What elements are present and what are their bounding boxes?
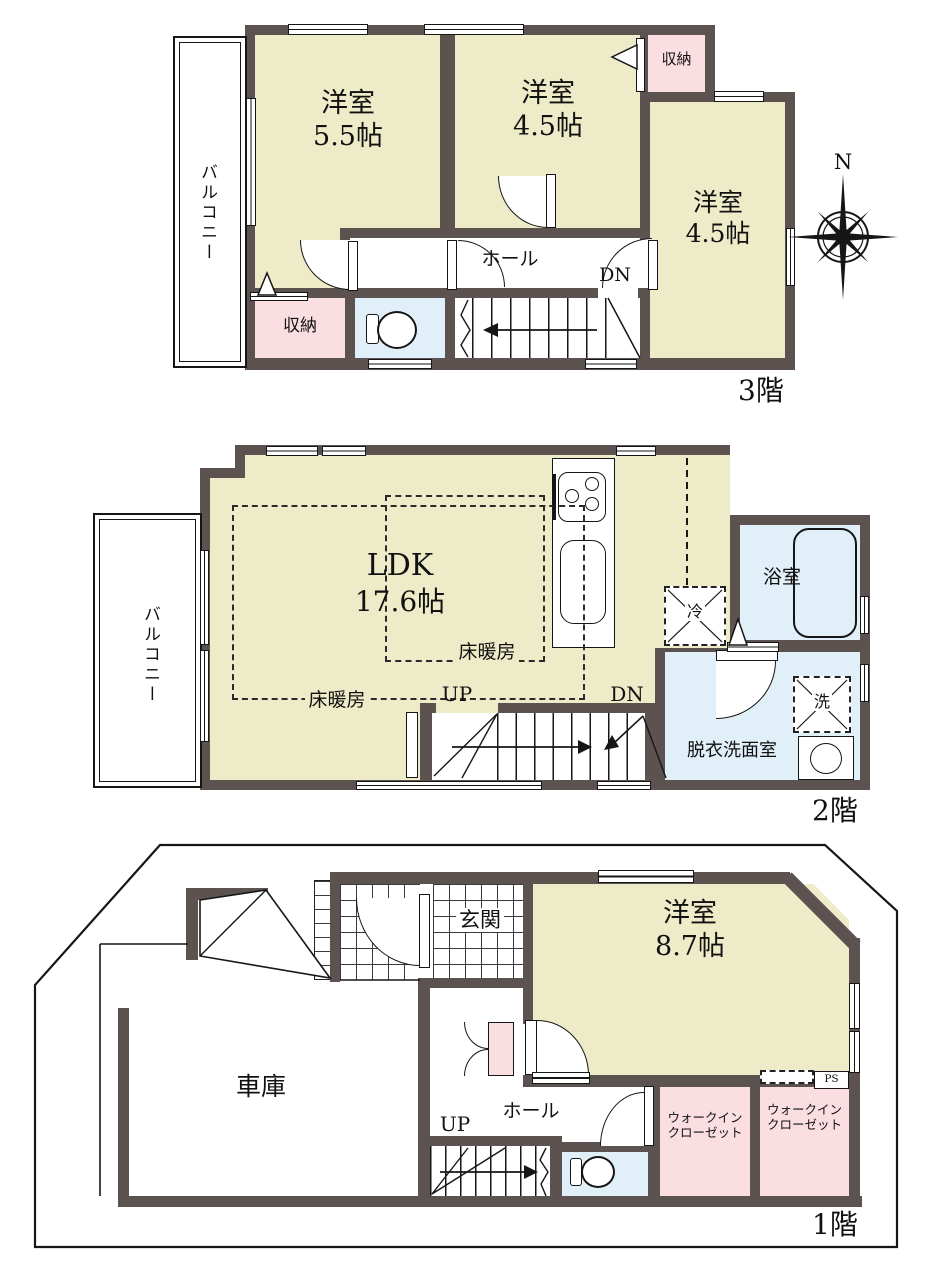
f1-wic-left-label: ウォークイン クローゼット <box>660 1110 750 1141</box>
f1-wic-left <box>660 1085 750 1196</box>
f3-room4_5mid-label: 洋室 4.5帖 <box>458 78 638 144</box>
f1-entrance-right-wall <box>523 884 533 1024</box>
f2-stair-pocket-door <box>406 712 418 778</box>
f1-wic-divider-wall <box>750 1085 760 1196</box>
f2-window-right-1 <box>860 596 869 634</box>
f1-porch-left-wall <box>330 872 340 982</box>
f3-floor-label: 3階 <box>738 374 818 408</box>
room-size: 4.5帖 <box>652 219 784 250</box>
f1-stair-top-wall <box>418 1136 562 1146</box>
f1-garage-top-wall-v <box>186 888 198 960</box>
f2-floor-heating-label-2: 床暖房 <box>432 641 542 664</box>
f3-window-top-1 <box>288 24 368 35</box>
f2-floor-heating-label-1: 床暖房 <box>282 689 392 712</box>
f2-burner-1-icon <box>585 477 599 491</box>
f1-toilet-bowl-icon <box>581 1156 615 1188</box>
f2-washroom-label: 脱衣洗面室 <box>663 740 801 762</box>
f1-hall-left-wall <box>418 978 430 1138</box>
floorplan-sheet: バルコニー <box>0 0 933 1280</box>
f1-window-right-2 <box>849 1031 860 1073</box>
f3-closet-tr-label: 収納 <box>648 50 705 68</box>
f3-room4_5right-label: 洋室 4.5帖 <box>652 188 784 249</box>
f3-window-bottom-1 <box>368 359 432 369</box>
room-name: LDK <box>305 548 495 585</box>
f2-floor-label: 2階 <box>812 794 892 828</box>
f3-window-right-room-top <box>714 91 764 102</box>
f1-wic-door-arc <box>600 1092 644 1146</box>
f2-sink-oval-icon <box>810 743 842 774</box>
f1-room-door-leaf <box>525 1020 537 1075</box>
f1-garage-top-wall-h <box>186 888 268 900</box>
f1-wic-door-leaf <box>644 1086 654 1146</box>
f3-window-top-2 <box>424 24 524 35</box>
room-name: 洋室 <box>258 88 438 121</box>
room-name: 洋室 <box>652 188 784 219</box>
f1-garage-lines <box>100 944 188 1196</box>
f1-entrance-bottom-wall <box>430 978 533 988</box>
f1-wic-right-label: ウォークイン クローゼット <box>760 1102 849 1133</box>
f3-window-right-wall <box>786 228 795 286</box>
f3-balcony-door-sill <box>250 292 308 301</box>
f2-window-top-3 <box>616 446 656 456</box>
f3-closet-bl-label: 収納 <box>255 316 345 337</box>
f2-ldk-lower-left <box>245 703 420 780</box>
f1-room-door-sill <box>532 1072 590 1084</box>
f2-stair-treads <box>497 713 645 780</box>
f1-hall-label: ホール <box>486 1100 576 1123</box>
f2-window-left-1 <box>200 550 209 645</box>
f1-garage-left-wall <box>118 1008 129 1196</box>
f3-stair-entry-gap <box>598 288 638 298</box>
f2-burner-2-icon <box>565 489 579 503</box>
f2-window-top-2 <box>322 446 366 456</box>
f2-burner-3-icon <box>585 497 599 511</box>
f1-window-right-1 <box>849 983 860 1029</box>
compass-north-label: N <box>827 150 859 176</box>
f2-bath-label: 浴室 <box>742 566 822 589</box>
f3-balcony-label: バルコニー <box>189 120 217 305</box>
room-size: 17.6帖 <box>305 585 495 619</box>
f2-dn-label: DN <box>600 682 654 706</box>
f2-kitchen-sink-icon <box>560 540 606 624</box>
f2-washer-label: 洗 <box>793 692 851 712</box>
f2-window-top-1 <box>266 446 318 456</box>
f2-up-label: UP <box>432 682 482 706</box>
room-size: 8.7帖 <box>600 931 780 964</box>
f1-toilet-left-wall <box>550 1142 562 1196</box>
f3-toilet-bowl-icon <box>377 311 417 349</box>
f1-driveway-slope <box>200 890 330 978</box>
f2-counter-edge <box>553 474 556 520</box>
room-name: 洋室 <box>458 78 638 111</box>
f1-stair-treads <box>430 1146 550 1196</box>
f3-window-bottom-2 <box>585 359 637 369</box>
f1-room8_7-label: 洋室 8.7帖 <box>600 898 780 964</box>
f1-entrance-door-leaf <box>419 894 430 968</box>
compass-icon <box>788 174 898 300</box>
f3-room5_5-label: 洋室 5.5帖 <box>258 88 438 154</box>
f1-floor-label: 1階 <box>812 1208 894 1242</box>
f1-shoe-cabinet <box>488 1022 514 1076</box>
f1-stair-left-wall <box>418 1136 430 1196</box>
f2-fridge-label: 冷 <box>664 602 726 622</box>
f1-top-wall <box>330 872 790 884</box>
f2-bath-door-sill <box>727 642 779 652</box>
f3-stair-treads <box>472 298 612 358</box>
f1-entrance-label: 玄関 <box>440 908 520 934</box>
f3-window-balcony-wall <box>246 98 256 226</box>
f2-window-bottom-1 <box>356 781 542 790</box>
f1-window-top <box>598 870 694 883</box>
f2-balcony-label: バルコニー <box>132 560 160 750</box>
room-name: 洋室 <box>600 898 780 931</box>
room-size: 4.5帖 <box>458 111 638 144</box>
f1-wic-left-top-wall <box>648 1075 750 1085</box>
f2-ldk-label: LDK 17.6帖 <box>305 548 495 619</box>
f1-wic-right-dashed-opening <box>760 1070 814 1084</box>
f1-garage-label: 車庫 <box>206 1072 316 1103</box>
f3-hall-label: ホール <box>440 248 580 271</box>
f1-shoe-door-arc-bottom <box>464 1049 488 1076</box>
room-size: 5.5帖 <box>258 121 438 154</box>
f3-door-leaf-room4_5mid <box>546 174 556 228</box>
f2-window-right-2 <box>860 664 869 702</box>
f3-dn-label: DN <box>588 264 642 287</box>
f1-bottom-wall <box>118 1196 862 1207</box>
f3-door-leaf-room5_5 <box>348 241 358 291</box>
f2-stair-left-wall <box>420 703 432 780</box>
f1-wic-right <box>760 1078 849 1196</box>
f1-ps-label: PS <box>814 1073 849 1086</box>
f1-shoe-door-arc-top <box>464 1022 488 1049</box>
f2-window-left-2 <box>200 650 209 742</box>
f3-hall-top-wall <box>350 228 640 238</box>
f2-window-bottom-2 <box>597 781 651 790</box>
f1-up-label: UP <box>432 1112 478 1136</box>
